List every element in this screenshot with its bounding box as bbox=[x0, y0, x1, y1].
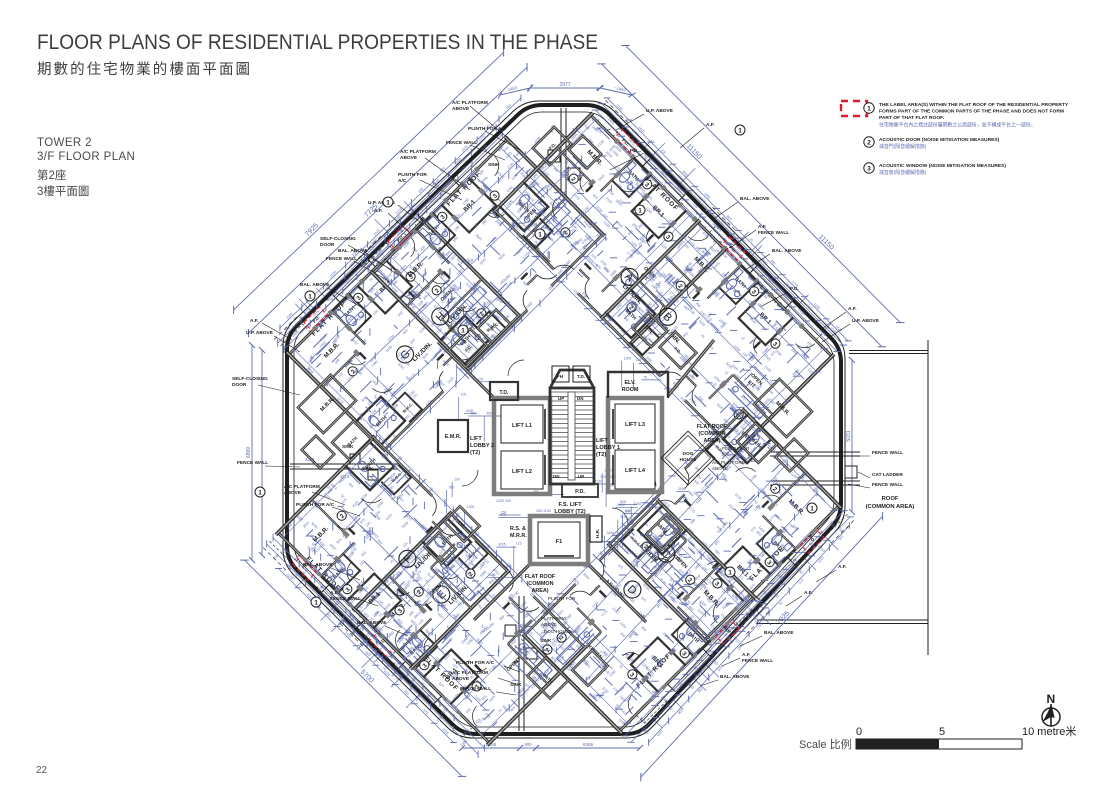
svg-text:H.R.: H.R. bbox=[595, 529, 600, 538]
svg-text:PLINTH FOR A/C: PLINTH FOR A/C bbox=[296, 502, 335, 508]
svg-text:3/F FLOOR PLAN: 3/F FLOOR PLAN bbox=[37, 151, 135, 163]
svg-text:HOUSE: HOUSE bbox=[679, 457, 697, 463]
svg-text:ABOVE: ABOVE bbox=[284, 490, 302, 496]
svg-text:N: N bbox=[1047, 692, 1056, 706]
svg-text:ABOVE: ABOVE bbox=[452, 106, 470, 112]
svg-text:6869: 6869 bbox=[246, 447, 252, 458]
svg-text:75: 75 bbox=[643, 375, 647, 379]
svg-text:FORMS PART OF THE COMMON PARTS: FORMS PART OF THE COMMON PARTS OF THE PH… bbox=[879, 108, 1064, 114]
svg-text:1: 1 bbox=[314, 600, 318, 607]
svg-text:DN: DN bbox=[577, 396, 584, 401]
svg-text:200: 200 bbox=[624, 510, 630, 514]
svg-text:PART OF THAT FLAT ROOF.: PART OF THAT FLAT ROOF. bbox=[879, 115, 945, 121]
svg-text:SELF-CLOSING: SELF-CLOSING bbox=[232, 376, 268, 382]
svg-text:1000: 1000 bbox=[624, 356, 632, 360]
svg-text:ROOM: ROOM bbox=[622, 387, 639, 393]
svg-text:(T2): (T2) bbox=[596, 452, 606, 458]
svg-text:DOG: DOG bbox=[683, 451, 694, 457]
svg-text:FENCE WALL: FENCE WALL bbox=[237, 460, 268, 466]
svg-text:ABOVE: ABOVE bbox=[452, 676, 470, 682]
svg-text:THE LABEL AREA(S) WITHIN THE F: THE LABEL AREA(S) WITHIN THE FLAT ROOF O… bbox=[879, 102, 1069, 108]
svg-text:1200 100: 1200 100 bbox=[496, 499, 511, 503]
svg-text:BAL. ABOVE: BAL. ABOVE bbox=[300, 282, 330, 288]
svg-text:SELF-CLOSING: SELF-CLOSING bbox=[320, 236, 356, 242]
svg-text:UP: UP bbox=[578, 474, 584, 479]
svg-text:1: 1 bbox=[738, 128, 742, 135]
svg-text:FENCE WALL: FENCE WALL bbox=[460, 686, 491, 692]
svg-text:PLINTH FOR A/C: PLINTH FOR A/C bbox=[456, 660, 495, 666]
svg-text:A.F.: A.F. bbox=[742, 652, 751, 658]
svg-text:A.F.: A.F. bbox=[804, 590, 813, 596]
svg-text:0: 0 bbox=[856, 726, 862, 738]
svg-text:PLINTH FOR: PLINTH FOR bbox=[398, 172, 427, 178]
svg-text:3樓平面圖: 3樓平面圖 bbox=[37, 184, 89, 198]
svg-text:第2座: 第2座 bbox=[37, 168, 66, 182]
svg-text:BAL. ABOVE: BAL. ABOVE bbox=[764, 630, 794, 636]
svg-text:SINK: SINK bbox=[488, 162, 500, 168]
svg-text:ROOF: ROOF bbox=[882, 496, 899, 502]
svg-text:450: 450 bbox=[486, 411, 492, 415]
svg-text:F.S. LIFT: F.S. LIFT bbox=[559, 502, 583, 508]
svg-text:UP: UP bbox=[558, 396, 564, 401]
svg-text:1: 1 bbox=[386, 200, 390, 207]
svg-text:U.P. ABOVE: U.P. ABOVE bbox=[646, 108, 674, 114]
svg-text:P.D.: P.D. bbox=[630, 148, 639, 154]
svg-text:A.F.: A.F. bbox=[848, 306, 857, 312]
svg-text:A/C: A/C bbox=[541, 610, 549, 615]
svg-text:2400: 2400 bbox=[617, 503, 625, 507]
svg-text:PLINTH FOR: PLINTH FOR bbox=[548, 596, 576, 601]
svg-text:BAL. ABOVE: BAL. ABOVE bbox=[720, 674, 750, 680]
svg-text:1: 1 bbox=[867, 106, 871, 113]
svg-text:A.F.: A.F. bbox=[758, 224, 767, 230]
svg-text:減音窗(隔音緩解措施): 減音窗(隔音緩解措施) bbox=[879, 169, 927, 176]
svg-text:BAL. ABOVE: BAL. ABOVE bbox=[740, 196, 770, 202]
svg-text:3150: 3150 bbox=[607, 531, 615, 535]
svg-text:LIFT L4: LIFT L4 bbox=[625, 468, 646, 474]
svg-text:150 1100: 150 1100 bbox=[536, 509, 551, 513]
svg-text:FENCE WALL: FENCE WALL bbox=[326, 256, 357, 262]
svg-text:BAL. ABOVE: BAL. ABOVE bbox=[772, 248, 802, 254]
svg-text:A/C PLATFORM: A/C PLATFORM bbox=[452, 670, 488, 676]
svg-text:125: 125 bbox=[636, 358, 642, 362]
svg-text:A/C: A/C bbox=[398, 178, 407, 184]
svg-text:A.F.: A.F. bbox=[838, 564, 847, 570]
svg-text:LIFT L3: LIFT L3 bbox=[625, 422, 645, 428]
svg-text:PLINTH FOR: PLINTH FOR bbox=[722, 446, 750, 451]
svg-text:1: 1 bbox=[728, 570, 732, 577]
svg-text:LOBBY 2: LOBBY 2 bbox=[470, 443, 494, 449]
svg-text:ABOVE: ABOVE bbox=[400, 155, 418, 161]
svg-text:5031: 5031 bbox=[846, 430, 852, 441]
svg-text:SINK: SINK bbox=[540, 638, 552, 644]
svg-text:F1: F1 bbox=[556, 539, 563, 545]
svg-text:FLAT ROOF: FLAT ROOF bbox=[697, 424, 728, 430]
svg-text:A/C: A/C bbox=[722, 452, 730, 457]
svg-text:100: 100 bbox=[461, 393, 467, 397]
svg-text:BAL. ABOVE: BAL. ABOVE bbox=[303, 562, 333, 568]
svg-text:SINK: SINK bbox=[362, 466, 374, 472]
svg-text:2130: 2130 bbox=[594, 480, 602, 484]
svg-text:ACOUSTIC DOOR (NOISE MITIGATIO: ACOUSTIC DOOR (NOISE MITIGATION MEASURES… bbox=[879, 137, 1000, 143]
svg-text:DN: DN bbox=[553, 474, 560, 479]
svg-text:100: 100 bbox=[454, 478, 460, 482]
svg-text:T.D.: T.D. bbox=[500, 390, 510, 396]
svg-text:FH: FH bbox=[557, 374, 563, 379]
svg-text:10 metre米: 10 metre米 bbox=[1022, 725, 1076, 738]
svg-text:900: 900 bbox=[525, 742, 533, 747]
svg-text:AREA): AREA) bbox=[703, 438, 720, 444]
svg-text:ABOVE: ABOVE bbox=[712, 466, 728, 471]
svg-text:(COMMON AREA): (COMMON AREA) bbox=[866, 504, 915, 510]
svg-text:P.D.: P.D. bbox=[575, 489, 585, 495]
svg-text:FENCE WALL: FENCE WALL bbox=[446, 140, 477, 146]
svg-text:PLATFORM: PLATFORM bbox=[541, 616, 566, 621]
svg-text:SINK: SINK bbox=[342, 444, 354, 450]
svg-text:1: 1 bbox=[308, 294, 312, 301]
svg-text:Scale 比例: Scale 比例 bbox=[799, 737, 852, 751]
svg-text:A.F.: A.F. bbox=[706, 122, 715, 128]
svg-text:LIFT L2: LIFT L2 bbox=[512, 469, 532, 475]
svg-text:T.D.: T.D. bbox=[577, 374, 585, 379]
svg-text:DOOR: DOOR bbox=[320, 242, 335, 248]
svg-text:2100: 2100 bbox=[488, 573, 496, 577]
svg-text:DOOR: DOOR bbox=[232, 382, 247, 388]
svg-text:LOBBY 1: LOBBY 1 bbox=[596, 445, 620, 451]
svg-text:U.P. ABOVE: U.P. ABOVE bbox=[246, 330, 274, 336]
svg-text:住宅物業平台內之標註部份屬期數之公用部份，並不構成平台之一部: 住宅物業平台內之標註部份屬期數之公用部份，並不構成平台之一部份。 bbox=[879, 122, 1036, 129]
svg-text:1: 1 bbox=[810, 506, 814, 513]
svg-text:2: 2 bbox=[867, 140, 871, 147]
svg-text:DOG HOUSE: DOG HOUSE bbox=[544, 629, 572, 634]
svg-text:3025: 3025 bbox=[498, 543, 506, 547]
svg-text:E.M.R.: E.M.R. bbox=[445, 434, 462, 440]
svg-text:(T2): (T2) bbox=[470, 450, 480, 456]
svg-text:150: 150 bbox=[501, 511, 507, 515]
svg-text:A.F.: A.F. bbox=[330, 590, 339, 596]
svg-text:ABOVE: ABOVE bbox=[541, 622, 557, 627]
svg-text:PLINTH FOR A/C: PLINTH FOR A/C bbox=[468, 126, 507, 132]
svg-text:FENCE WALL: FENCE WALL bbox=[758, 230, 789, 236]
svg-text:2400: 2400 bbox=[466, 409, 474, 413]
svg-text:ELV.: ELV. bbox=[624, 380, 636, 386]
svg-text:AREA): AREA) bbox=[531, 588, 548, 594]
svg-text:BAL. ABOVE: BAL. ABOVE bbox=[338, 248, 368, 254]
svg-text:FLAT ROOF: FLAT ROOF bbox=[525, 574, 556, 580]
svg-text:1: 1 bbox=[461, 328, 465, 335]
svg-text:LIFT: LIFT bbox=[596, 438, 608, 444]
svg-text:825: 825 bbox=[648, 503, 654, 507]
svg-text:FLOOR PLANS OF RESIDENTIAL PRO: FLOOR PLANS OF RESIDENTIAL PROPERTIES IN… bbox=[37, 30, 598, 54]
svg-text:FENCE WALL: FENCE WALL bbox=[872, 482, 903, 488]
svg-text:ACOUSTIC WINDOW (NOISE MITIGAT: ACOUSTIC WINDOW (NOISE MITIGATION MEASUR… bbox=[879, 163, 1006, 169]
svg-text:A.F.: A.F. bbox=[374, 208, 383, 214]
svg-text:1: 1 bbox=[538, 232, 542, 239]
svg-text:(COMMON: (COMMON bbox=[699, 431, 726, 437]
svg-text:M.R.R.: M.R.R. bbox=[510, 533, 527, 539]
svg-text:1200: 1200 bbox=[467, 505, 475, 509]
svg-text:A.F.: A.F. bbox=[250, 318, 259, 324]
svg-text:LIFT L1: LIFT L1 bbox=[512, 423, 532, 429]
svg-text:A/C PLATFORM: A/C PLATFORM bbox=[284, 484, 320, 490]
svg-text:U.P. ABOVE: U.P. ABOVE bbox=[852, 318, 880, 324]
svg-text:A/C PLATFORM: A/C PLATFORM bbox=[712, 460, 746, 465]
svg-text:減音門(隔音緩解措施): 減音門(隔音緩解措施) bbox=[879, 143, 927, 150]
svg-text:3150: 3150 bbox=[633, 502, 641, 506]
svg-text:1: 1 bbox=[638, 208, 642, 215]
svg-text:3: 3 bbox=[867, 166, 871, 173]
svg-text:2977: 2977 bbox=[559, 82, 570, 88]
svg-text:22: 22 bbox=[36, 765, 48, 776]
svg-text:5: 5 bbox=[939, 726, 945, 738]
svg-text:BAL. ABOVE: BAL. ABOVE bbox=[357, 620, 387, 626]
svg-text:P.D.: P.D. bbox=[790, 286, 799, 292]
svg-text:A/C: A/C bbox=[548, 602, 556, 607]
svg-text:TOWER 2: TOWER 2 bbox=[37, 137, 92, 149]
svg-text:950: 950 bbox=[449, 485, 455, 489]
svg-text:FENCE WALL: FENCE WALL bbox=[872, 450, 903, 456]
svg-text:FENCE WALL: FENCE WALL bbox=[330, 596, 361, 602]
svg-text:3150: 3150 bbox=[678, 487, 686, 491]
svg-text:(COMMON: (COMMON bbox=[527, 581, 554, 587]
svg-text:1: 1 bbox=[258, 490, 262, 497]
svg-text:R.S. &: R.S. & bbox=[510, 526, 526, 532]
svg-text:125: 125 bbox=[516, 541, 522, 545]
svg-text:6365: 6365 bbox=[583, 742, 594, 747]
svg-text:A/C PLATFORM: A/C PLATFORM bbox=[452, 100, 488, 106]
svg-text:A/C PLATFORM: A/C PLATFORM bbox=[400, 149, 436, 155]
svg-text:FENCE WALL: FENCE WALL bbox=[742, 658, 773, 664]
svg-text:LIFT: LIFT bbox=[470, 436, 482, 442]
svg-text:CAT LADDER: CAT LADDER bbox=[872, 472, 903, 478]
